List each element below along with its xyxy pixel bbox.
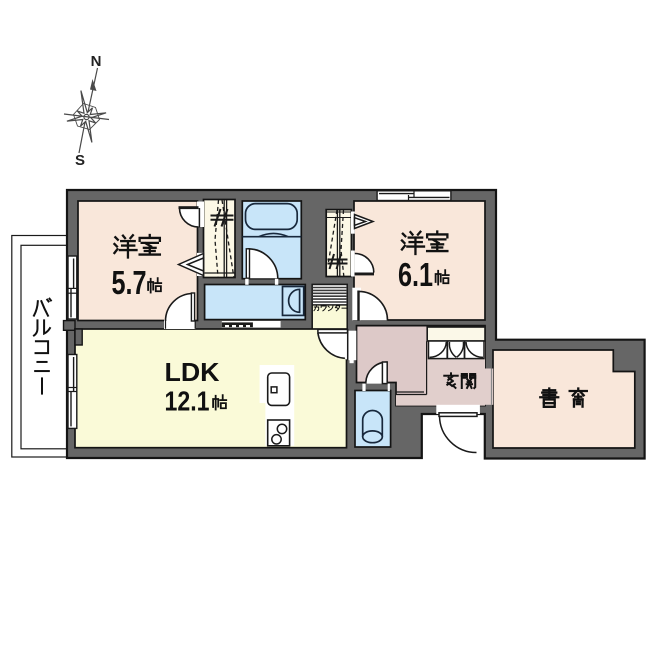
svg-text:N: N xyxy=(91,53,102,70)
svg-text:S: S xyxy=(75,152,85,169)
svg-text:12.1: 12.1 xyxy=(165,386,210,417)
svg-text:LDK: LDK xyxy=(165,357,220,387)
svg-text:5.7: 5.7 xyxy=(112,264,147,301)
svg-text:6.1: 6.1 xyxy=(398,256,433,293)
